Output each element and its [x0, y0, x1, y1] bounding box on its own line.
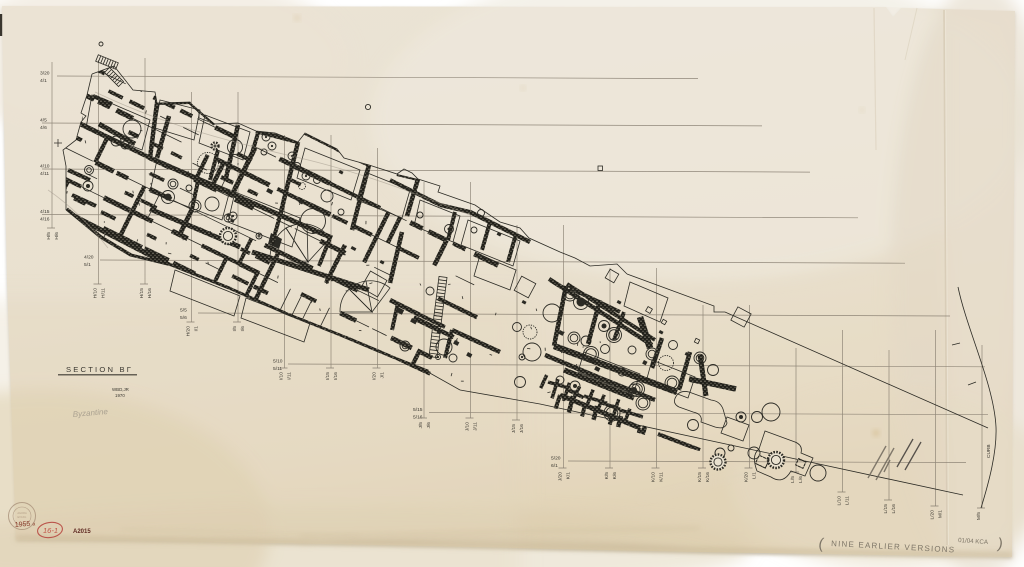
svg-text:J/15: J/15: [511, 424, 517, 434]
svg-text:I/11: I/11: [287, 372, 293, 380]
svg-text:J/16: J/16: [519, 424, 525, 434]
svg-text:M/5: M/5: [976, 512, 982, 520]
svg-text:H/16: H/16: [147, 288, 153, 299]
svg-text:H/10: H/10: [92, 288, 98, 299]
svg-text:I/5: I/5: [232, 326, 238, 332]
svg-text:1970: 1970: [115, 393, 125, 398]
svg-text:I/20: I/20: [371, 372, 377, 380]
svg-text:K/11: K/11: [659, 472, 665, 482]
svg-text:WBD,JR: WBD,JR: [112, 387, 129, 392]
svg-text:I/6: I/6: [240, 326, 246, 332]
svg-text:L/5: L/5: [790, 476, 796, 483]
svg-text:5/10: 5/10: [273, 359, 283, 365]
svg-text:4/16: 4/16: [40, 217, 50, 223]
svg-text:5/20: 5/20: [551, 456, 561, 462]
svg-text:H/15: H/15: [139, 288, 145, 299]
svg-text:K/16: K/16: [705, 472, 711, 482]
svg-text:I/1: I/1: [194, 326, 200, 332]
svg-text:K/20: K/20: [743, 472, 749, 482]
svg-text:5/11: 5/11: [273, 366, 282, 372]
svg-text:4/11: 4/11: [40, 171, 49, 177]
svg-text:L/15: L/15: [883, 504, 889, 514]
svg-text:L/6: L/6: [798, 476, 804, 483]
svg-text:4/10: 4/10: [40, 164, 50, 170]
svg-text:5/5: 5/5: [180, 308, 187, 314]
svg-text:EXCAV.: EXCAV.: [17, 515, 26, 519]
svg-text:K/15: K/15: [697, 472, 703, 482]
svg-text:A2015: A2015: [73, 529, 91, 535]
svg-text:I/10: I/10: [278, 372, 284, 380]
svg-text:J/11: J/11: [473, 422, 479, 431]
svg-text:H/5: H/5: [46, 232, 52, 240]
svg-text:J/5: J/5: [418, 422, 424, 429]
svg-text:5/15: 5/15: [413, 407, 423, 413]
svg-text:K/10: K/10: [650, 472, 656, 482]
svg-text:I/15: I/15: [325, 372, 331, 380]
svg-text:H/11: H/11: [101, 288, 107, 298]
svg-text:SECTION BΓ: SECTION BΓ: [66, 365, 133, 374]
svg-text:L/11: L/11: [845, 496, 851, 505]
svg-text:4/15: 4/15: [40, 209, 50, 215]
svg-text:H/6: H/6: [54, 232, 60, 240]
svg-text:M/1: M/1: [938, 510, 944, 518]
svg-text:K/6: K/6: [612, 472, 618, 480]
svg-text:4/5: 4/5: [40, 118, 47, 124]
svg-text:H/20: H/20: [185, 326, 191, 337]
svg-text:K/5: K/5: [604, 472, 610, 480]
svg-text:L/20: L/20: [929, 510, 935, 520]
svg-text:5/1: 5/1: [84, 262, 91, 268]
svg-text:3/20: 3/20: [40, 71, 50, 77]
svg-text:J/1: J/1: [380, 372, 386, 379]
svg-text:4/20: 4/20: [84, 255, 94, 261]
svg-text:16-1: 16-1: [43, 526, 58, 535]
svg-text:5/6: 5/6: [180, 315, 187, 321]
svg-text:J/20: J/20: [557, 472, 563, 482]
svg-text:AGORA: AGORA: [17, 511, 27, 515]
svg-text:4/6: 4/6: [40, 125, 47, 131]
svg-text:J/6: J/6: [426, 422, 432, 429]
svg-text:CURB: CURB: [986, 444, 992, 458]
svg-text:6/1: 6/1: [551, 463, 558, 469]
svg-text:J/10: J/10: [464, 422, 470, 432]
svg-text:L/16: L/16: [891, 504, 897, 514]
svg-text:K/1: K/1: [566, 472, 572, 480]
svg-text:L/10: L/10: [836, 496, 842, 506]
svg-text:L/1: L/1: [752, 472, 758, 479]
svg-text:I/16: I/16: [333, 372, 339, 380]
svg-text:4/1: 4/1: [40, 78, 47, 84]
